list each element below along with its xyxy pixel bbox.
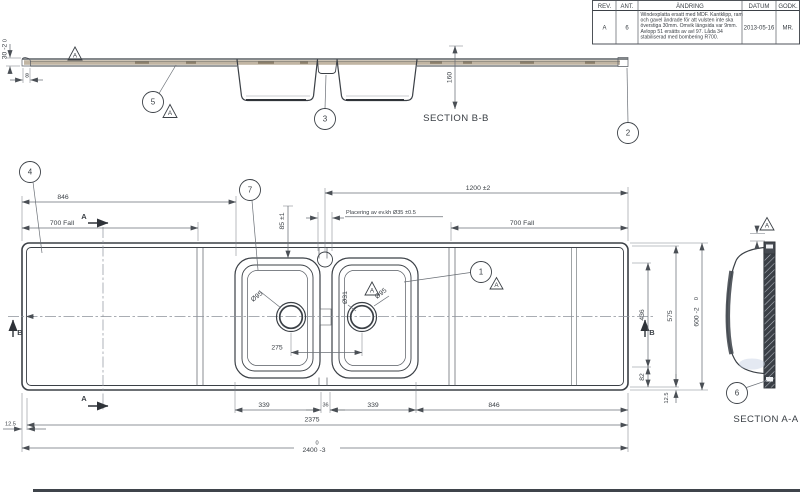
ant-header: ANT. — [620, 4, 633, 10]
datum-a-letter: A — [370, 288, 375, 295]
dim-36-label: 36 — [322, 403, 328, 409]
faucet-hole — [318, 252, 333, 267]
section-arrow-b-left-label: B — [17, 328, 23, 337]
balloon-4: 4 — [20, 162, 41, 183]
balloon-7-number: 7 — [248, 186, 253, 195]
ant-value: 6 — [625, 26, 629, 32]
dim-30-upper-tol: 0 — [3, 39, 9, 42]
datum-a-flag-balloon1: A — [490, 278, 503, 290]
dim-160-label: 160 — [447, 72, 454, 84]
bowl-left-plan — [235, 258, 320, 378]
revision-table: REV. ANT. ÄNDRING DATUM GODK. A 6 Windex… — [593, 1, 800, 45]
dim-700-fall-right-label: 700 Fall — [510, 220, 535, 227]
dim-436-label: 436 — [639, 309, 646, 321]
section-arrow-a-bottom-label: A — [81, 394, 87, 403]
bowl-right-section — [337, 60, 417, 101]
dim-339-left-label: 339 — [258, 402, 270, 409]
balloon-2-number: 2 — [626, 129, 631, 138]
datum-header: DATUM — [749, 4, 770, 10]
dim-1200-label: 1200 ±2 — [466, 185, 491, 192]
balloon-7: 7 — [240, 180, 261, 201]
datum-a-flag-bb-balloon5: A — [163, 105, 177, 118]
dim-700-fall-left-label: 700 Fall — [50, 220, 75, 227]
balloon-1: 1 — [471, 262, 492, 283]
dim-dia31-label: Ø31 — [342, 291, 349, 304]
bowl-divider-detail — [320, 309, 331, 325]
balloon-5: 5 — [143, 92, 164, 113]
dim-125-right-label: 12.5 — [664, 393, 670, 404]
section-arrow-a-top-label: A — [81, 212, 87, 221]
section-bb-view: 0 30 -2 8 A 5 A 3 160 SECTI — [2, 39, 639, 144]
dim-82-label: 82 — [639, 373, 646, 381]
andring-line-5: stabiliserad med bombering R700. — [641, 34, 719, 40]
dim-8-label: 8 — [25, 73, 29, 80]
balloon-3-number: 3 — [323, 115, 328, 124]
godk-header: GODK. — [778, 4, 798, 10]
rev-header: REV. — [598, 4, 612, 10]
bowl-right-plan — [332, 258, 418, 378]
dim-2400-upper-tol: 0 — [315, 441, 318, 447]
drain-right — [348, 303, 377, 332]
plan-view: 846 700 Fall 1200 ±2 Placering av ev.kh … — [3, 162, 708, 455]
dim-339-right-label: 339 — [367, 402, 379, 409]
datum-a-letter: A — [168, 110, 173, 117]
dim-30-label: 30 -2 — [2, 44, 9, 60]
bowl-bottom-tint — [739, 359, 765, 370]
dim-600-upper-tol: 0 — [694, 297, 700, 300]
section-aa-view: A 6 SECTION A-A — [727, 218, 799, 426]
bowl-profile-aa — [727, 248, 764, 374]
balloon-3: 3 — [315, 109, 336, 130]
andring-header: ÄNDRING — [676, 3, 704, 10]
datum-a-flag-bb-left: A — [68, 47, 82, 60]
dim-2375-label: 2375 — [304, 417, 319, 424]
dim-846-bottom-label: 846 — [488, 402, 500, 409]
balloon-6-number: 6 — [735, 389, 740, 398]
datum-value: 2013-05-16 — [744, 26, 775, 32]
dim-kh-note-label: Placering av ev.kh Ø35 ±0.5 — [346, 210, 416, 216]
dim-600-label: 600 -2 — [694, 307, 701, 326]
dim-846-top-label: 846 — [57, 194, 69, 201]
balloon-1-number: 1 — [479, 268, 484, 277]
dim-2400-label: 2400 -3 — [302, 447, 325, 454]
gavel-cut-strip — [764, 242, 775, 388]
datum-a-letter: A — [765, 223, 770, 230]
balloon-2: 2 — [618, 123, 639, 144]
dim-125-left-label: 12.5 — [5, 422, 16, 428]
balloon-5-number: 5 — [151, 98, 156, 107]
dim-575-label: 575 — [667, 310, 674, 322]
drain-left — [277, 303, 306, 332]
balloon-4-number: 4 — [28, 168, 33, 177]
dim-dia95-left-label: Ø95 — [250, 290, 265, 304]
bowl-edge-shadow — [728, 271, 732, 354]
datum-a-flag-aa: A — [760, 218, 774, 231]
section-aa-label: SECTION A-A — [733, 414, 798, 425]
dim-275-label: 275 — [271, 345, 283, 352]
datum-a-letter: A — [494, 282, 499, 289]
rev-value: A — [602, 26, 606, 32]
dim-85-label: 85 ±1 — [279, 212, 286, 229]
section-bb-label: SECTION B-B — [423, 113, 489, 124]
godk-value: MR. — [783, 26, 794, 32]
balloon-6: 6 — [727, 383, 748, 404]
drawing-canvas: REV. ANT. ÄNDRING DATUM GODK. A 6 Windex… — [0, 0, 800, 493]
strip-top-slot — [766, 245, 773, 249]
bowl-left-section — [237, 60, 318, 101]
section-arrow-b-right-label: B — [649, 328, 655, 337]
